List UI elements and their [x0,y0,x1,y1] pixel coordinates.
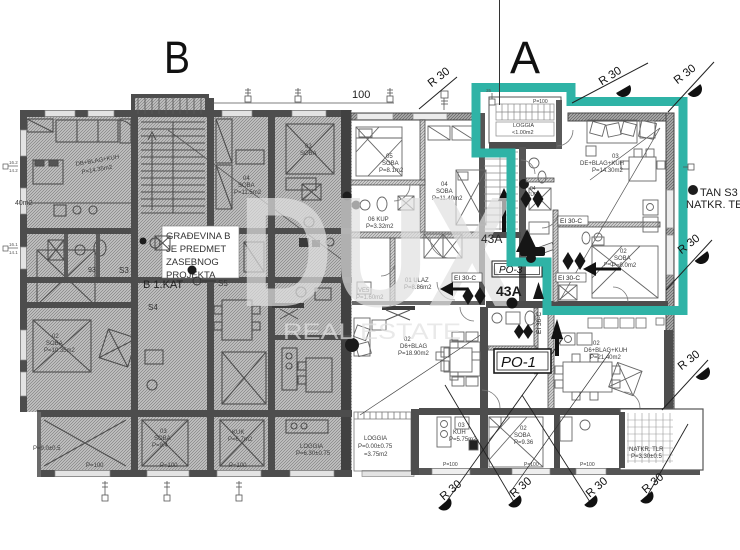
svg-text:<1.00m2: <1.00m2 [512,130,534,136]
svg-text:JE PREDMET: JE PREDMET [166,244,226,255]
svg-text:P=5.75m2: P=5.75m2 [449,437,477,443]
svg-text:GRAĐEVINA B: GRAĐEVINA B [166,231,230,242]
svg-text:93: 93 [88,267,96,274]
svg-text:SOBA: SOBA [46,341,63,347]
svg-text:LOGGIA: LOGGIA [364,436,387,442]
svg-text:16.2: 16.2 [9,160,18,165]
svg-text:SOBA: SOBA [514,433,531,439]
svg-text:P=6.7m2: P=6.7m2 [228,437,253,443]
svg-text:DE+BLAG+KUH: DE+BLAG+KUH [580,161,624,167]
svg-text:14.2: 14.2 [9,168,18,173]
svg-text:43A: 43A [496,283,522,299]
svg-text:P=0: P=0 [604,262,613,268]
svg-text:P=3.30±0.5: P=3.30±0.5 [631,454,662,460]
svg-text:43A: 43A [481,232,502,246]
svg-text:LOGGIA: LOGGIA [300,444,323,450]
svg-text:B 1.KAT: B 1.KAT [143,279,183,291]
svg-text:05: 05 [386,154,393,160]
svg-text:EI 36-C: EI 36-C [536,312,543,334]
svg-text:P=100: P=100 [229,463,247,469]
svg-text:D6+BLAG+KUH: D6+BLAG+KUH [584,348,627,354]
svg-text:EI 30-C: EI 30-C [558,275,580,282]
svg-text:02: 02 [593,341,600,347]
svg-text:16.1: 16.1 [9,242,18,247]
svg-text:03: 03 [160,429,167,435]
svg-text:P=14.30m2: P=14.30m2 [592,168,624,174]
svg-text:EI 30-C: EI 30-C [454,275,476,282]
svg-text:02: 02 [520,426,527,432]
svg-text:NATKR. TLR: NATKR. TLR [629,447,664,453]
svg-text:=3.75m2: =3.75m2 [364,452,388,458]
svg-text:S4: S4 [148,303,158,312]
svg-text:P=9.4: P=9.4 [152,443,169,449]
svg-text:P=100: P=100 [86,463,104,469]
svg-text:EI 30-C: EI 30-C [560,218,582,225]
svg-text:P=100: P=100 [533,99,548,105]
svg-text:P=10.35m2: P=10.35m2 [44,348,76,354]
svg-text:100: 100 [352,89,370,101]
svg-text:REAL ESTATE: REAL ESTATE [283,319,461,344]
svg-text:SOBA: SOBA [300,151,317,157]
svg-text:02: 02 [620,249,627,255]
svg-text:NATKR. TE: NATKR. TE [686,199,740,211]
svg-text:P=0.00±0.75: P=0.00±0.75 [358,444,393,450]
svg-text:KUK: KUK [232,430,244,436]
svg-text:P=6.30±0.75: P=6.30±0.75 [296,451,331,457]
svg-text:02: 02 [52,334,59,340]
svg-text:14.1: 14.1 [9,250,18,255]
svg-text:03: 03 [458,423,465,429]
svg-text:40m2: 40m2 [15,200,33,207]
svg-text:P=100: P=100 [160,463,178,469]
svg-text:P=100: P=100 [443,462,458,468]
svg-text:P=18.90m2: P=18.90m2 [398,351,430,357]
svg-text:35: 35 [486,88,492,93]
svg-text:LOGGIA: LOGGIA [513,123,534,129]
svg-text:03: 03 [305,144,312,150]
svg-text:P=9.0±0.5: P=9.0±0.5 [33,446,61,452]
svg-text:S5: S5 [218,279,228,288]
svg-text:D6+BLAG: D6+BLAG [400,344,428,350]
svg-text:B: B [164,32,190,83]
svg-text:P=100: P=100 [580,462,595,468]
svg-text:P=9.36: P=9.36 [514,440,534,446]
svg-text:TAN S3: TAN S3 [700,187,738,199]
svg-text:SOBA: SOBA [614,256,631,262]
svg-text:KUH: KUH [453,430,466,436]
svg-text:DUX: DUX [238,165,516,340]
svg-text:S3: S3 [119,266,129,275]
svg-text:PO-3: PO-3 [499,265,523,276]
svg-text:SOBA: SOBA [154,436,171,442]
svg-text:03: 03 [612,154,619,160]
svg-text:A: A [510,32,540,83]
svg-text:PO-1: PO-1 [501,354,536,371]
